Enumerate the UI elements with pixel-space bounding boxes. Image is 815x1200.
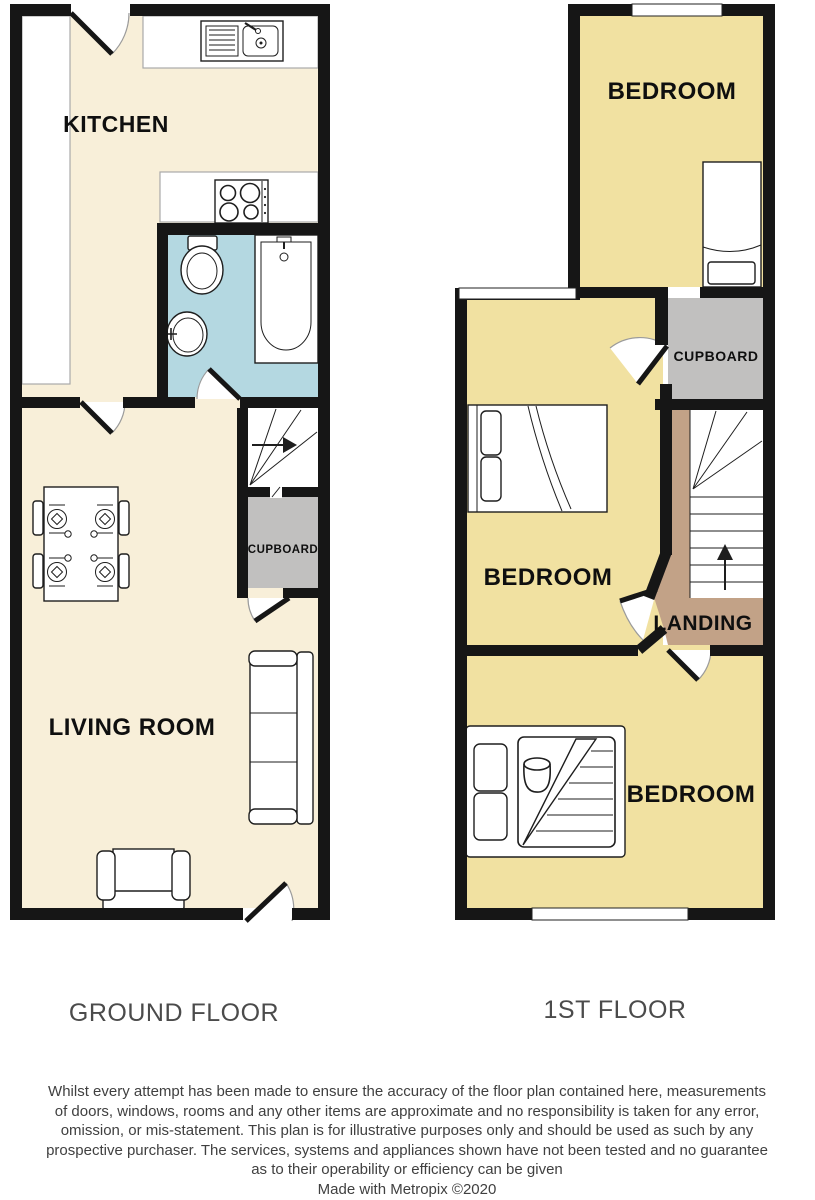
bedroom-top-label: BEDROOM [608, 78, 737, 105]
single-bed-icon [703, 162, 761, 287]
first-floor-plan: BEDROOM CUPBOARD BEDROOM LANDING BEDROOM [455, 4, 775, 920]
living-room-label: LIVING ROOM [49, 714, 216, 741]
toilet-icon [181, 236, 223, 294]
cupboard-hatch-ground [270, 486, 282, 498]
bathtub-icon [255, 235, 318, 363]
first-floor-caption: 1ST FLOOR [455, 996, 775, 1025]
cupboard-label-first: CUPBOARD [674, 348, 759, 364]
double-bed-icon [468, 405, 607, 512]
ground-floor-caption: GROUND FLOOR [14, 999, 334, 1028]
sink-icon [201, 21, 283, 61]
armchair-icon [97, 849, 190, 913]
window-left [459, 288, 576, 299]
cupboard-floor-ground [248, 497, 318, 588]
landing-label: LANDING [653, 612, 752, 635]
cupboard-label-ground: CUPBOARD [248, 544, 318, 556]
floorplan-page: KITCHEN LIVING ROOM CUPBOARD [0, 0, 815, 1200]
metropix-credit: Made with Metropix ©2020 [27, 1180, 787, 1200]
disclaimer-line: prospective purchaser. The services, sys… [27, 1141, 787, 1161]
bedroom-middle-label: BEDROOM [484, 564, 613, 591]
floorplan-drawing: KITCHEN LIVING ROOM CUPBOARD [0, 0, 815, 940]
duvet-bed-icon [466, 726, 625, 857]
ground-floor-plan: KITCHEN LIVING ROOM CUPBOARD [10, 4, 330, 921]
window-top [632, 4, 722, 16]
kitchen-counter-left [22, 16, 70, 384]
hob-icon [215, 180, 268, 223]
bedroom-bottom-label: BEDROOM [627, 781, 756, 808]
basin-icon [166, 312, 207, 356]
stairs-area-first [690, 410, 763, 598]
disclaimer: Whilst every attempt has been made to en… [27, 1082, 787, 1199]
kitchen-label: KITCHEN [63, 111, 169, 137]
sofa-icon [249, 651, 313, 824]
disclaimer-line: of doors, windows, rooms and any other i… [27, 1102, 787, 1122]
dining-table-icon [33, 487, 129, 601]
disclaimer-line: as to their operability or efficiency ca… [27, 1160, 787, 1180]
disclaimer-line: omission, or mis-statement. This plan is… [27, 1121, 787, 1141]
window-bottom [532, 908, 688, 920]
disclaimer-line: Whilst every attempt has been made to en… [27, 1082, 787, 1102]
